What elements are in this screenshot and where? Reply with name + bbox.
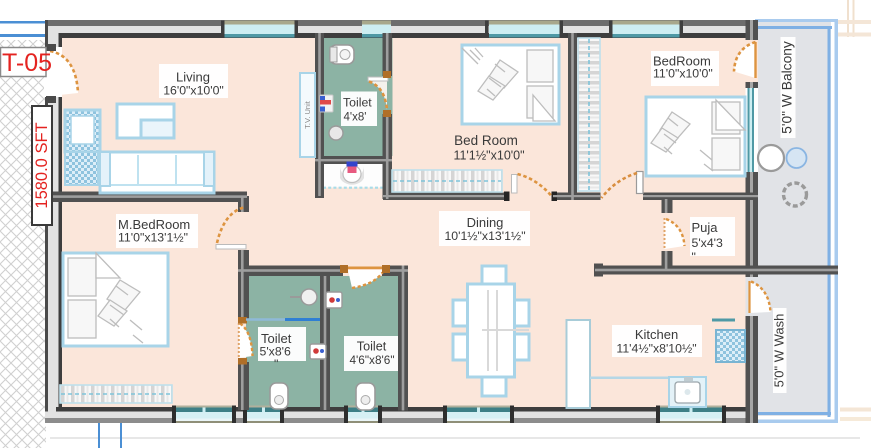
svg-text:11'4½"x8'10½": 11'4½"x8'10½": [616, 342, 696, 356]
svg-text:Kitchen: Kitchen: [635, 327, 678, 342]
svg-text:5'x4'3: 5'x4'3: [692, 236, 724, 250]
svg-text:11'0"x10'0": 11'0"x10'0": [653, 67, 713, 81]
svg-text:1580.0 SFT: 1580.0 SFT: [33, 122, 51, 208]
svg-text:Toilet: Toilet: [357, 340, 387, 354]
svg-text:11'0"x13'1½": 11'0"x13'1½": [118, 231, 188, 245]
svg-text:10'1½"x13'1½": 10'1½"x13'1½": [444, 229, 525, 243]
svg-text:Dining: Dining: [467, 215, 504, 230]
svg-text:T-05: T-05: [2, 49, 52, 77]
svg-text:5'0" W Wash: 5'0" W Wash: [772, 314, 787, 388]
svg-text:11'1½"x10'0": 11'1½"x10'0": [453, 149, 524, 163]
svg-text:5'0" W Balcony: 5'0" W Balcony: [780, 41, 795, 134]
svg-text:Living: Living: [176, 70, 210, 85]
svg-text:4'6"x8'6": 4'6"x8'6": [349, 353, 394, 367]
svg-text:": ": [692, 250, 696, 264]
svg-text:4'x8': 4'x8': [344, 112, 367, 124]
svg-text:": ": [274, 357, 278, 371]
svg-text:Bed Room: Bed Room: [454, 133, 518, 148]
svg-text:Toilet: Toilet: [343, 96, 372, 110]
svg-text:16'0"x10'0": 16'0"x10'0": [163, 84, 224, 98]
svg-text:T.V. Unit: T.V. Unit: [303, 100, 312, 129]
svg-text:Puja: Puja: [692, 220, 719, 235]
